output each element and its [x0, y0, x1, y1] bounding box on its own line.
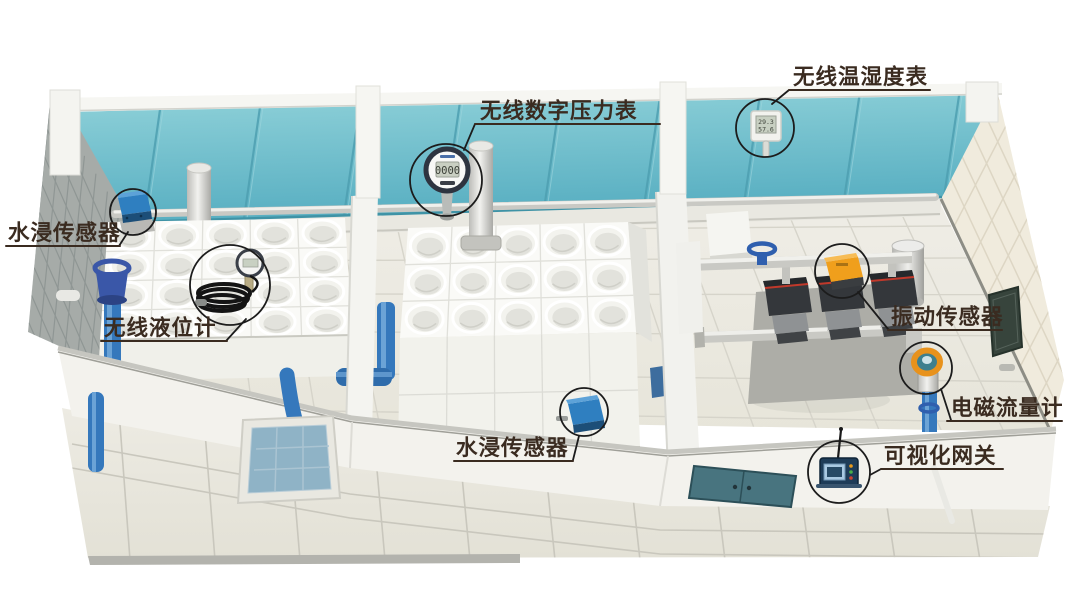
- label-water-leak-wall: 水浸传感器: [8, 220, 121, 245]
- door-handle: [747, 486, 751, 490]
- humidity-reading: 57.6: [758, 126, 774, 134]
- wall-pipe-stub: [56, 290, 80, 301]
- corner-column-right: [966, 82, 998, 122]
- label-gateway: 可视化网关: [884, 443, 997, 468]
- water-tank-left: [98, 218, 354, 381]
- water-basin: [238, 416, 340, 503]
- door-handle: [733, 485, 737, 489]
- label-vibration-sensor: 振动传感器: [891, 304, 1004, 329]
- label-level-meter: 无线液位计: [104, 315, 217, 340]
- control-box: [706, 211, 752, 256]
- label-water-leak-floor: 水浸传感器: [456, 435, 569, 460]
- gateway-device: [816, 427, 862, 488]
- scene-illustration: 29.3 57.6 0000: [0, 0, 1080, 603]
- gauge-brand-mark: [440, 155, 455, 158]
- wall-fitting: [999, 364, 1015, 371]
- label-flow-meter: 电磁流量计: [951, 395, 1064, 420]
- tank-hatches: [403, 223, 634, 337]
- corner-column-left: [50, 90, 80, 175]
- level-probe: [195, 299, 207, 306]
- label-temp-humidity-meter: 无线温湿度表: [793, 64, 928, 89]
- water-tank-middle: [398, 222, 652, 452]
- label-pressure-gauge: 无线数字压力表: [480, 98, 638, 123]
- pump-room-diagram: 29.3 57.6 0000: [0, 0, 1080, 603]
- wall-cabinet: [676, 241, 703, 334]
- pressure-reading: 0000: [435, 165, 460, 177]
